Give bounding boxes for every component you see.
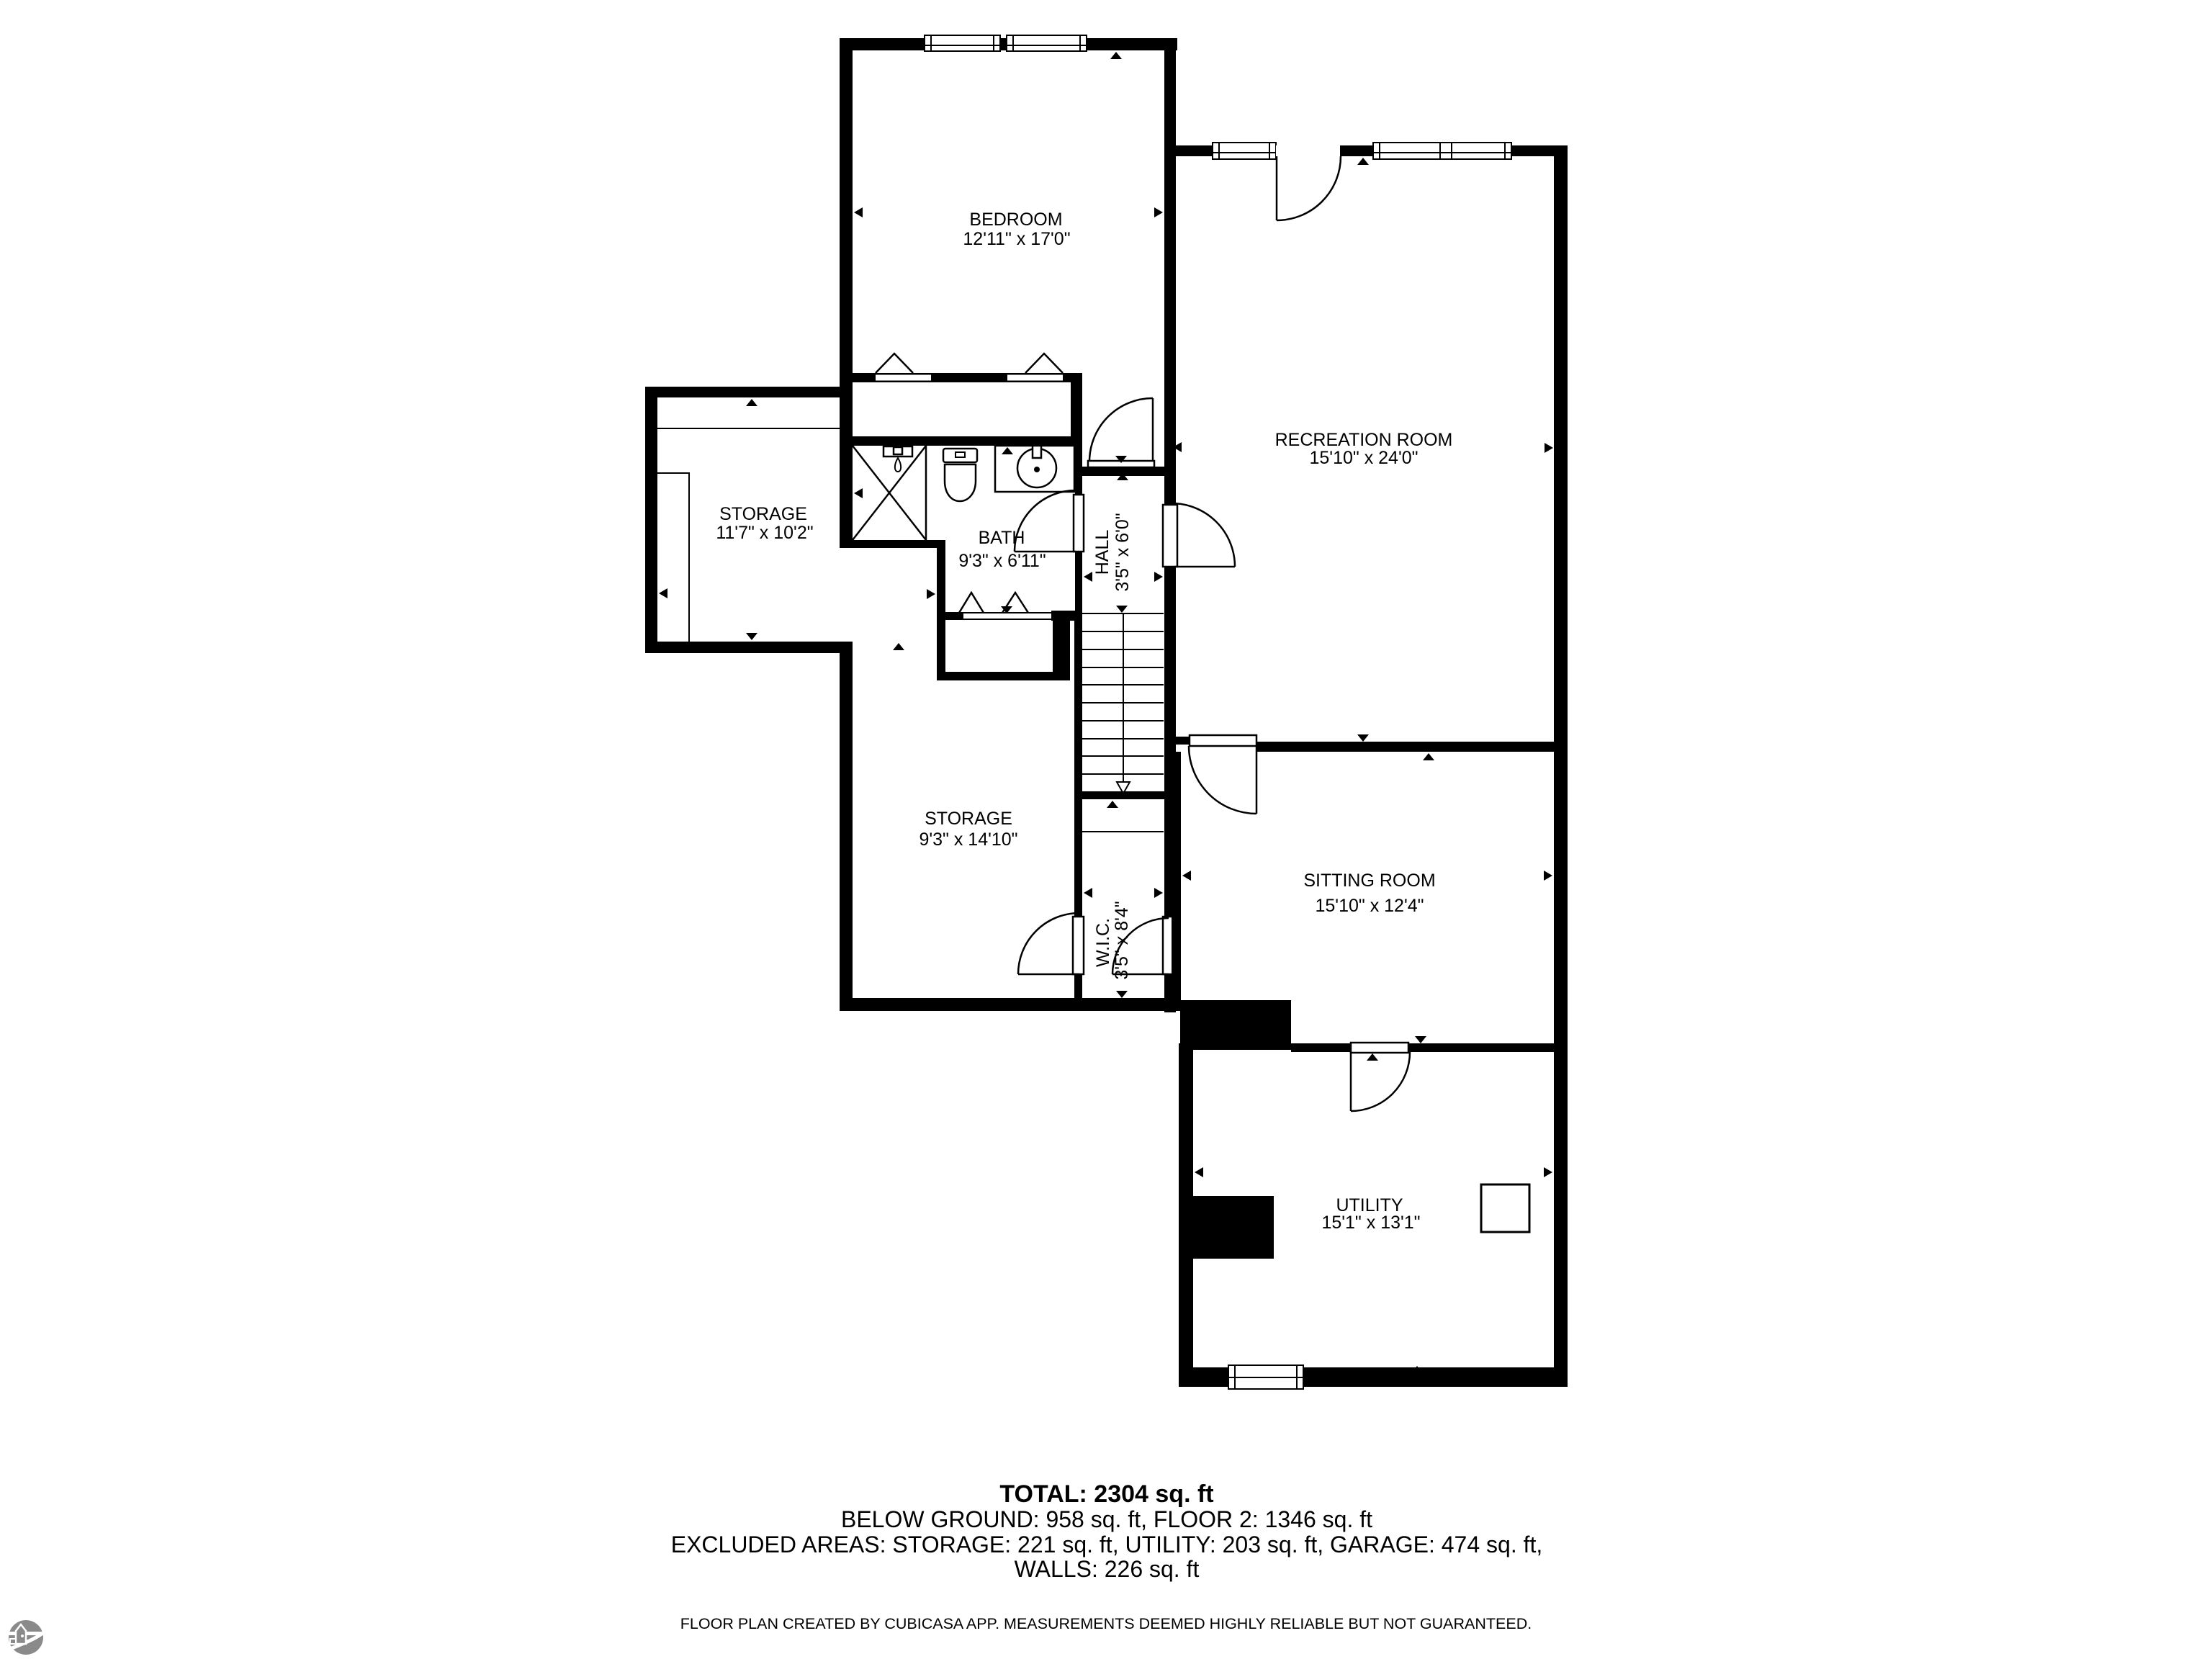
svg-text:STORAGE: STORAGE: [925, 809, 1012, 829]
svg-text:RECREATION ROOM: RECREATION ROOM: [1275, 430, 1453, 450]
svg-text:W.I.C.: W.I.C.: [1093, 918, 1113, 967]
svg-text:BELOW GROUND: 958 sq. ft, FLOO: BELOW GROUND: 958 sq. ft, FLOOR 2: 1346 …: [841, 1506, 1372, 1532]
svg-text:SITTING ROOM: SITTING ROOM: [1303, 871, 1435, 891]
svg-text:EXCLUDED AREAS: STORAGE: 221 s: EXCLUDED AREAS: STORAGE: 221 sq. ft, UTI…: [671, 1532, 1543, 1557]
svg-text:3'5" x 8'4": 3'5" x 8'4": [1112, 901, 1132, 979]
svg-text:WALLS: 226 sq. ft: WALLS: 226 sq. ft: [1015, 1556, 1200, 1582]
svg-text:9'3" x 6'11": 9'3" x 6'11": [958, 551, 1046, 571]
svg-text:15'1" x 13'1": 15'1" x 13'1": [1321, 1213, 1420, 1233]
svg-text:BATH: BATH: [979, 528, 1025, 548]
svg-text:11'7" x 10'2": 11'7" x 10'2": [716, 523, 813, 543]
svg-text:12'11" x 17'0": 12'11" x 17'0": [963, 229, 1070, 249]
svg-text:15'10" x 12'4": 15'10" x 12'4": [1315, 896, 1424, 916]
svg-text:3'5" x 6'0": 3'5" x 6'0": [1112, 513, 1133, 591]
svg-text:9'3" x 14'10": 9'3" x 14'10": [919, 829, 1017, 850]
svg-text:HALL: HALL: [1092, 530, 1112, 575]
svg-text:BEDROOM: BEDROOM: [969, 210, 1062, 230]
svg-text:TOTAL: 2304 sq. ft: TOTAL: 2304 sq. ft: [999, 1480, 1213, 1508]
svg-text:FLOOR PLAN CREATED BY CUBICASA: FLOOR PLAN CREATED BY CUBICASA APP. MEAS…: [680, 1615, 1532, 1632]
svg-text:15'10" x 24'0": 15'10" x 24'0": [1309, 448, 1418, 468]
svg-text:STORAGE: STORAGE: [719, 504, 807, 524]
